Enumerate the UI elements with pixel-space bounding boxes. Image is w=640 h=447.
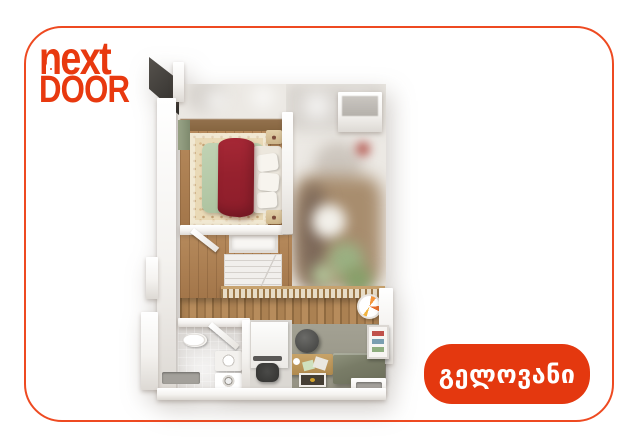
- pillow: [257, 172, 280, 192]
- wall: [173, 62, 184, 102]
- stair-lightwell: [229, 233, 278, 253]
- listing-card: next DOOR: [24, 26, 614, 422]
- blur-blob-red: [356, 142, 370, 156]
- ceiling-light-glow: [244, 84, 282, 112]
- floor-mat: [299, 373, 326, 387]
- washing-machine: [215, 373, 242, 389]
- monitor: [253, 356, 282, 361]
- bottom-wall: [157, 388, 386, 400]
- table-lamp: [293, 358, 300, 365]
- location-badge[interactable]: გელოვანი: [424, 344, 590, 404]
- bookshelf: [367, 325, 389, 359]
- ceiling-light-glow: [294, 86, 340, 126]
- office-chair: [256, 363, 279, 382]
- red-blanket: [218, 138, 255, 217]
- pillow: [256, 191, 277, 208]
- blur-blob-plant: [312, 264, 334, 286]
- shaft-inner: [342, 96, 378, 116]
- divider-wall: [242, 320, 250, 390]
- left-wall: [157, 98, 176, 390]
- stair-winder-line: [256, 255, 281, 286]
- blurred-ceiling-area: [178, 84, 286, 120]
- sink: [215, 351, 242, 371]
- page: next DOOR: [0, 0, 640, 447]
- wall-ledge: [146, 257, 158, 299]
- pillow: [256, 153, 279, 173]
- wardrobe: [178, 120, 190, 150]
- ceiling-light-glow: [200, 86, 234, 114]
- floor-vent: [162, 372, 200, 384]
- location-badge-label: გელოვანი: [439, 360, 576, 389]
- bedroom-wall: [282, 112, 293, 234]
- nightstand: [266, 130, 282, 144]
- stool: [295, 329, 319, 353]
- stairs: [224, 254, 282, 287]
- blur-blob-table: [312, 204, 346, 238]
- wall: [141, 312, 158, 390]
- nightstand: [266, 210, 282, 224]
- toilet: [183, 333, 207, 347]
- desk: [250, 322, 288, 368]
